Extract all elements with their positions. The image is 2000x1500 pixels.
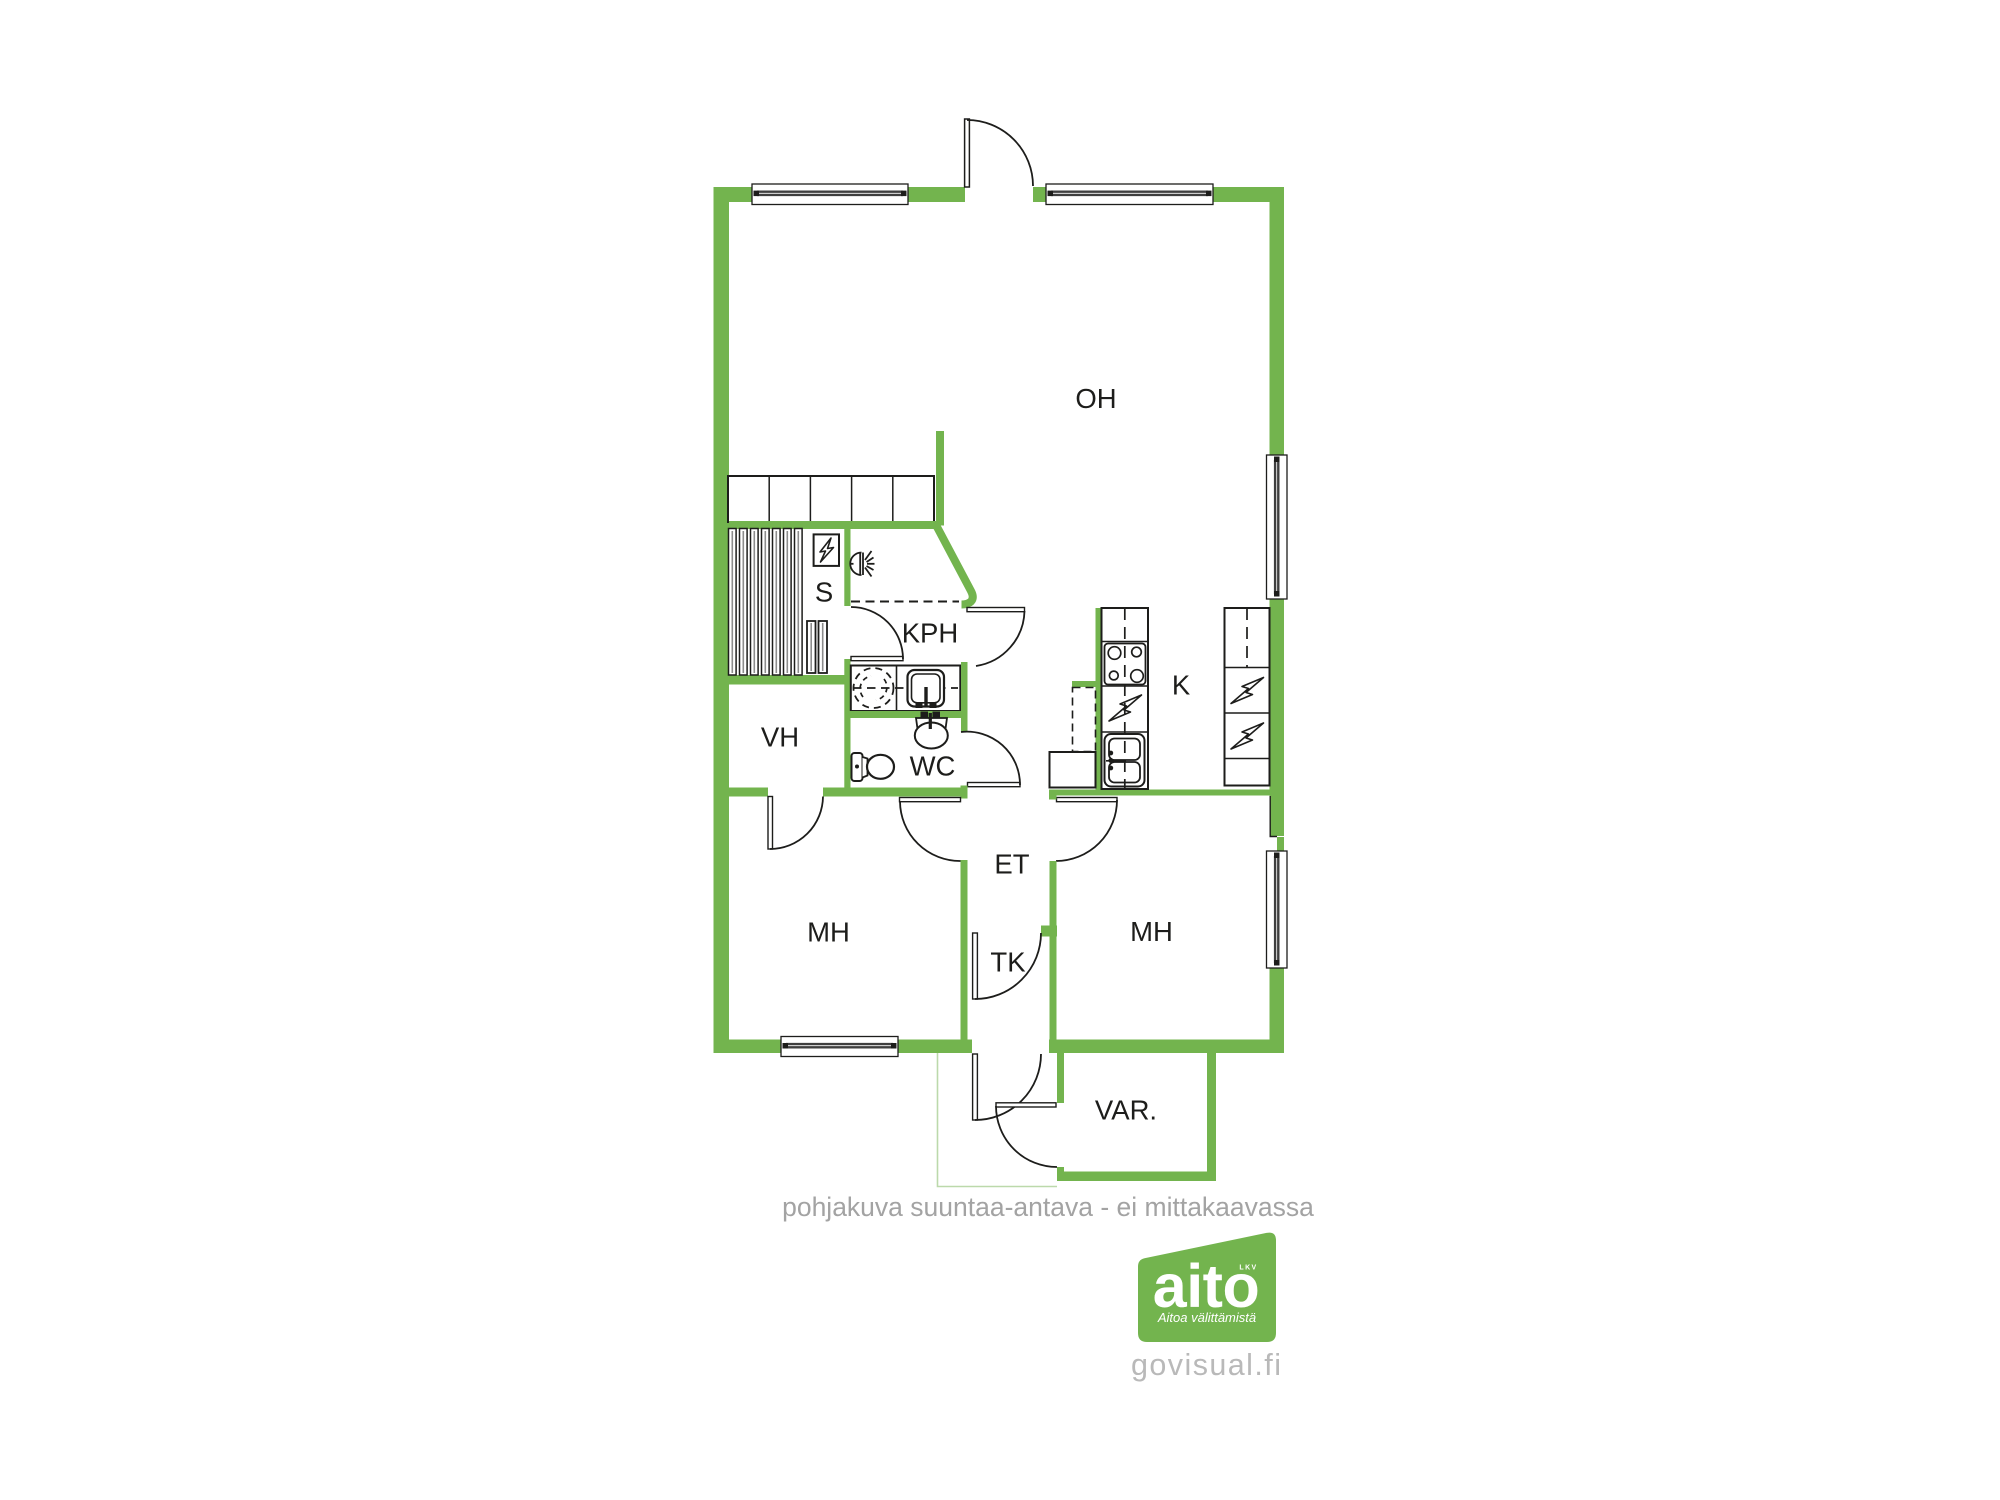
svg-text:VAR.: VAR.	[1095, 1095, 1157, 1126]
svg-text:WC: WC	[910, 751, 956, 782]
svg-text:govisual.fi: govisual.fi	[1131, 1348, 1281, 1382]
svg-text:LKV: LKV	[1239, 1265, 1257, 1272]
svg-text:Aitoa välittämistä: Aitoa välittämistä	[1157, 1310, 1256, 1325]
svg-text:KPH: KPH	[902, 618, 959, 649]
svg-text:MH: MH	[1130, 916, 1173, 947]
svg-text:ET: ET	[994, 849, 1029, 880]
svg-text:VH: VH	[761, 722, 799, 753]
svg-text:S: S	[815, 577, 833, 608]
svg-text:pohjakuva suuntaa-antava - ei: pohjakuva suuntaa-antava - ei mittakaava…	[782, 1192, 1314, 1222]
svg-text:OH: OH	[1075, 383, 1116, 414]
svg-text:K: K	[1172, 670, 1191, 701]
svg-text:TK: TK	[990, 947, 1026, 978]
svg-text:MH: MH	[807, 917, 850, 948]
